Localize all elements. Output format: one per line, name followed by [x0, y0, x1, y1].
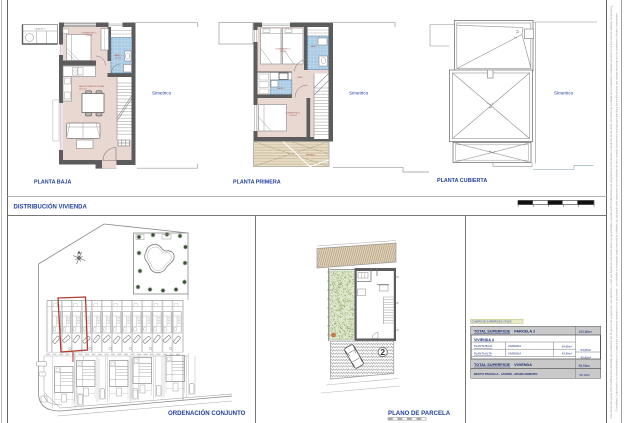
svg-text:PLANO DE PARCELA: PLANO DE PARCELA — [388, 410, 451, 417]
svg-text:CUADRO DE SUPERFICIES UTILES: CUADRO DE SUPERFICIES UTILES — [472, 321, 512, 324]
svg-text:BAÑO 2: BAÑO 2 — [278, 87, 285, 90]
svg-text:ORDENACIÓN CONJUNTO: ORDENACIÓN CONJUNTO — [168, 409, 246, 417]
svg-text:VIVIENDA: VIVIENDA — [508, 344, 521, 348]
svg-text:BAÑO 1: BAÑO 1 — [311, 45, 318, 48]
svg-text:Este documento puede sufrir mo: Este documento puede sufrir modificacion… — [610, 5, 613, 418]
svg-text:10.50 m2: 10.50 m2 — [289, 115, 297, 117]
svg-text:23.70 m2: 23.70 m2 — [79, 89, 87, 91]
svg-text:43,90m²: 43,90m² — [581, 355, 592, 359]
svg-text:PLANTA ALTA: PLANTA ALTA — [474, 351, 492, 355]
svg-text:TOTAL SUPERFICIEVIVIENDA: TOTAL SUPERFICIEVIVIENDA — [474, 363, 532, 367]
svg-text:8.20 m2: 8.20 m2 — [280, 51, 287, 53]
svg-text:54,65m²: 54,65m² — [562, 344, 572, 348]
svg-text:54,65m²: 54,65m² — [581, 348, 592, 352]
svg-text:El mobiliario, la decoración,: El mobiliario, la decoración, los electr… — [615, 12, 618, 411]
svg-text:PLANTA BAJA: PLANTA BAJA — [474, 344, 492, 348]
svg-text:VIVIENDA: VIVIENDA — [508, 351, 521, 355]
svg-text:98,55m²: 98,55m² — [579, 364, 591, 368]
svg-text:43,90m²: 43,90m² — [562, 352, 572, 356]
svg-text:95,15m²: 95,15m² — [580, 373, 591, 377]
svg-text:9.90 m2: 9.90 m2 — [86, 35, 93, 37]
svg-text:TOTAL SUPERFICIEPARCELA 2: TOTAL SUPERFICIEPARCELA 2 — [474, 329, 535, 333]
svg-text:TERRAZA: TERRAZA — [306, 154, 316, 157]
svg-text:Simetrico: Simetrico — [349, 91, 369, 96]
svg-text:LAVADERO: LAVADERO — [35, 27, 46, 30]
svg-text:153,80m²: 153,80m² — [579, 330, 592, 334]
svg-text:Simetrico: Simetrico — [152, 91, 172, 96]
svg-text:Simetrico: Simetrico — [554, 91, 574, 96]
svg-text:PLANTA PRIMERA: PLANTA PRIMERA — [233, 180, 281, 186]
svg-text:2: 2 — [380, 347, 385, 357]
svg-text:PLANTA BAJA: PLANTA BAJA — [34, 180, 72, 186]
svg-text:4.50 m2: 4.50 m2 — [115, 58, 122, 60]
svg-text:VIVIENDA 4: VIVIENDA 4 — [474, 338, 494, 342]
svg-text:BAÑO 1: BAÑO 1 — [114, 54, 122, 57]
svg-text:PLANTA CUBIERTA: PLANTA CUBIERTA — [437, 178, 487, 184]
svg-text:DISTRIBUCIÓN VIVIENDA: DISTRIBUCIÓN VIVIENDA — [14, 203, 88, 211]
svg-text:RESTO PARCELA - JARDIN - APARC: RESTO PARCELA - JARDIN - APARCAMIENTO — [474, 372, 538, 376]
svg-text:▪: ▪ — [612, 4, 613, 8]
svg-text:SALON COMEDOR COCINA: SALON COMEDOR COCINA — [79, 85, 104, 88]
svg-text:PASO: PASO — [297, 76, 303, 79]
